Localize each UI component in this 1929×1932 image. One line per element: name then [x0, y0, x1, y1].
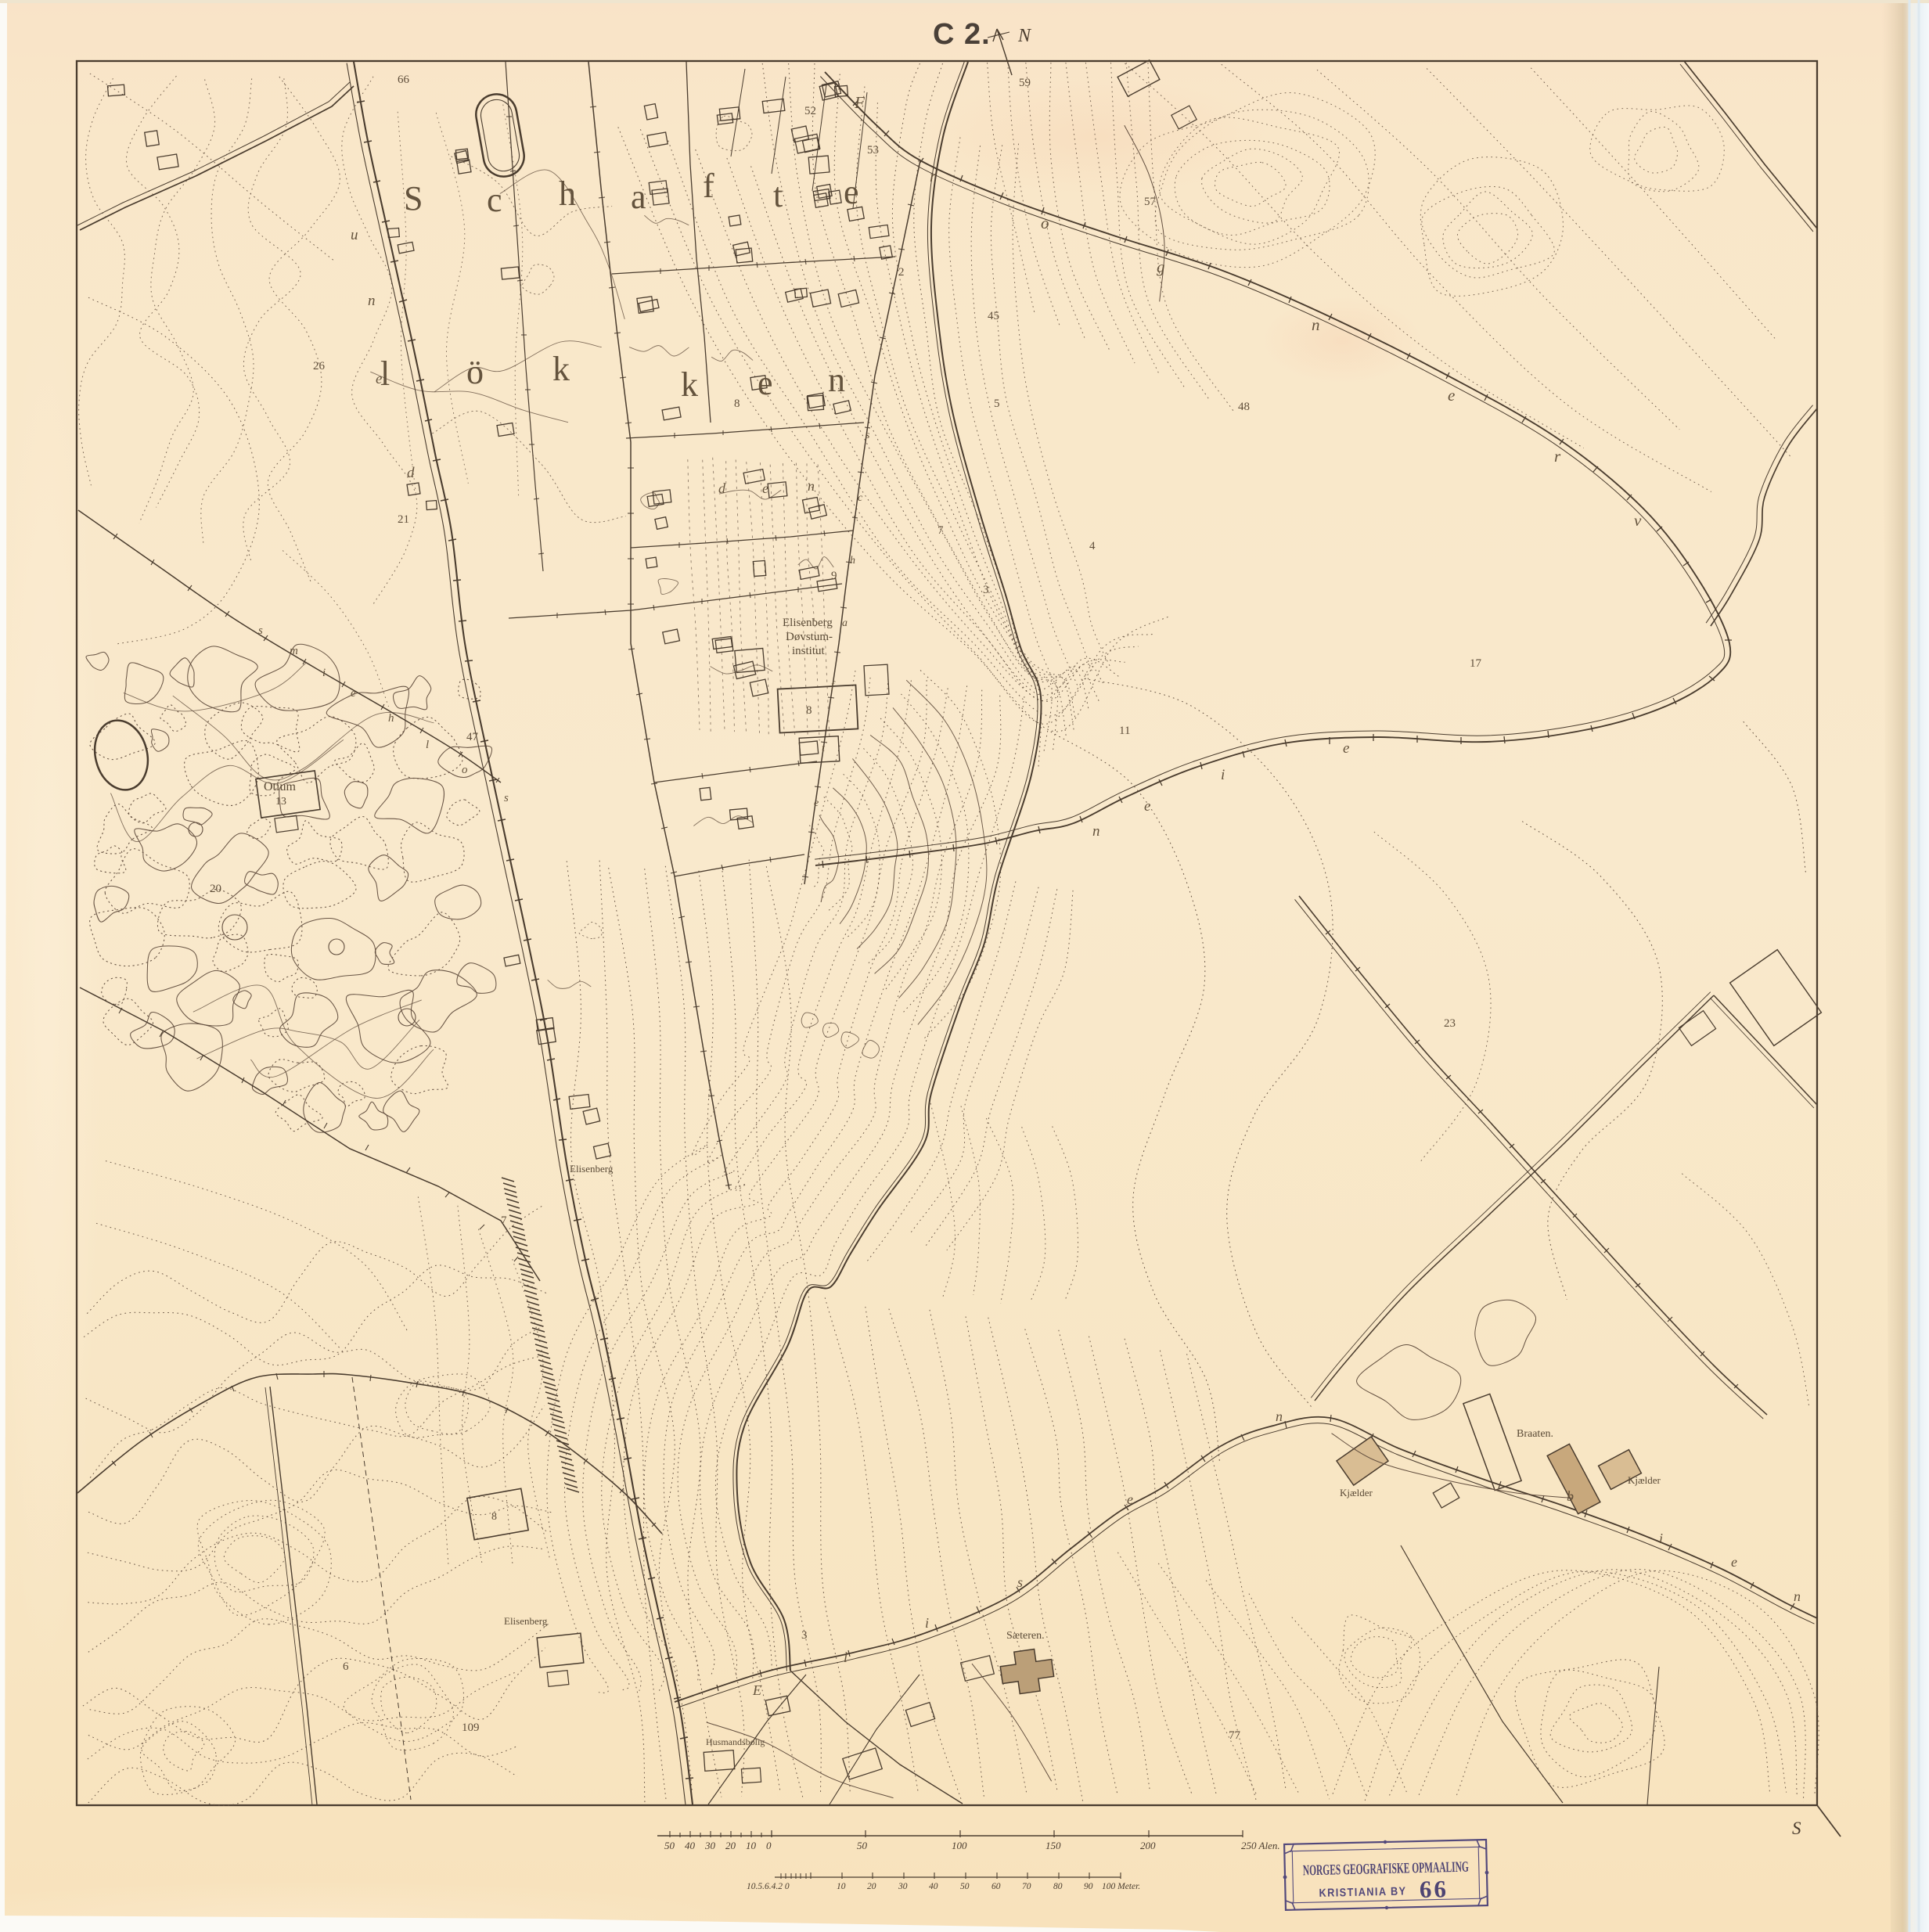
svg-text:Elisenberg: Elisenberg: [570, 1163, 614, 1175]
svg-text:e: e: [844, 173, 859, 211]
svg-text:i: i: [322, 667, 326, 679]
svg-text:10.5.6.4.2 0: 10.5.6.4.2 0: [747, 1882, 790, 1891]
svg-text:7: 7: [501, 1214, 507, 1227]
svg-text:r: r: [1554, 447, 1561, 466]
svg-text:n: n: [1794, 1588, 1801, 1604]
svg-text:23: 23: [1444, 1017, 1456, 1030]
svg-text:o: o: [462, 764, 468, 776]
svg-text:20: 20: [867, 1882, 876, 1891]
svg-text:t: t: [773, 176, 783, 214]
svg-text:i: i: [925, 1615, 929, 1631]
svg-text:institut: institut: [792, 645, 826, 657]
svg-text:e: e: [1144, 798, 1150, 815]
svg-text:13: 13: [275, 796, 286, 808]
svg-text:o: o: [1041, 214, 1049, 232]
svg-text:e: e: [1731, 1554, 1737, 1570]
svg-text:60: 60: [991, 1882, 1001, 1891]
svg-text:i: i: [1659, 1531, 1663, 1546]
svg-text:Husmandsbolig: Husmandsbolig: [706, 1736, 765, 1747]
svg-text:e: e: [351, 687, 356, 700]
svg-text:20: 20: [725, 1840, 736, 1851]
svg-text:47: 47: [466, 731, 479, 743]
svg-text:e: e: [1343, 740, 1349, 757]
svg-text:50: 50: [664, 1840, 675, 1851]
svg-text:Kjælder: Kjælder: [1340, 1487, 1373, 1498]
svg-text:9: 9: [831, 570, 837, 582]
svg-text:g: g: [1157, 257, 1165, 276]
svg-text:e: e: [376, 371, 382, 387]
svg-text:100 Meter.: 100 Meter.: [1102, 1882, 1140, 1891]
svg-text:F: F: [854, 93, 865, 112]
svg-text:s: s: [1017, 1574, 1023, 1590]
svg-text:c: c: [858, 492, 863, 504]
svg-text:77: 77: [1229, 1729, 1241, 1742]
svg-text:Kjælder: Kjælder: [1628, 1474, 1661, 1486]
svg-text:0: 0: [766, 1840, 772, 1851]
svg-text:40: 40: [929, 1882, 938, 1891]
svg-text:Elisenberg: Elisenberg: [783, 617, 833, 629]
svg-text:b: b: [1567, 1488, 1574, 1504]
svg-text:109: 109: [462, 1722, 480, 1734]
svg-text:17: 17: [1470, 657, 1482, 670]
svg-text:v: v: [1634, 511, 1642, 530]
svg-text:50: 50: [857, 1840, 868, 1851]
svg-text:80: 80: [1053, 1882, 1063, 1891]
svg-text:e: e: [758, 364, 773, 402]
svg-text:30: 30: [898, 1882, 908, 1891]
svg-text:4: 4: [1089, 540, 1096, 552]
svg-text:m: m: [290, 645, 298, 657]
svg-text:r: r: [930, 167, 937, 185]
svg-text:Otium: Otium: [264, 780, 296, 793]
svg-text:66: 66: [398, 74, 410, 86]
svg-text:40: 40: [685, 1840, 696, 1851]
svg-text:30: 30: [704, 1840, 716, 1851]
svg-text:n: n: [1276, 1409, 1283, 1424]
svg-text:e: e: [762, 480, 768, 496]
svg-text:E: E: [752, 1682, 761, 1698]
svg-text:Braaten.: Braaten.: [1517, 1428, 1553, 1440]
svg-text:150: 150: [1045, 1840, 1061, 1851]
svg-text:57: 57: [1144, 196, 1157, 208]
svg-text:KRISTIANIA BY: KRISTIANIA BY: [1319, 1885, 1406, 1900]
svg-text:k: k: [681, 365, 698, 404]
svg-text:45: 45: [988, 310, 999, 322]
svg-text:n: n: [368, 293, 376, 309]
svg-text:a: a: [631, 178, 646, 216]
svg-text:5: 5: [994, 398, 1000, 410]
svg-text:n: n: [1092, 823, 1100, 840]
svg-text:e: e: [1127, 1491, 1133, 1507]
svg-text:26: 26: [313, 360, 326, 372]
svg-text:8: 8: [491, 1511, 497, 1523]
svg-text:s: s: [504, 792, 509, 804]
svg-text:l: l: [426, 739, 429, 751]
svg-text:C 2.: C 2.: [933, 18, 991, 51]
svg-text:l: l: [844, 1650, 848, 1665]
svg-text:59: 59: [1019, 77, 1031, 89]
svg-text:S: S: [404, 179, 423, 218]
svg-text:53: 53: [867, 144, 879, 157]
svg-text:21: 21: [398, 513, 409, 526]
svg-text:d: d: [718, 480, 726, 496]
svg-text:s: s: [258, 624, 263, 637]
svg-text:Døvstum-: Døvstum-: [786, 631, 833, 643]
svg-text:n: n: [828, 361, 845, 399]
svg-text:k: k: [552, 350, 570, 388]
svg-text:s: s: [866, 430, 870, 441]
svg-text:3: 3: [983, 584, 989, 596]
svg-text:e: e: [1448, 386, 1455, 405]
svg-text:70: 70: [1022, 1882, 1031, 1891]
svg-text:d: d: [407, 465, 415, 481]
svg-text:3: 3: [801, 1629, 808, 1642]
svg-text:e: e: [814, 797, 819, 809]
svg-text:h: h: [850, 555, 855, 567]
svg-text:20: 20: [210, 883, 221, 895]
svg-text:a: a: [842, 617, 848, 629]
svg-text:50: 50: [960, 1882, 970, 1891]
svg-text:250 Alen.: 250 Alen.: [1241, 1840, 1280, 1851]
svg-text:u: u: [351, 227, 358, 243]
svg-text:8: 8: [806, 704, 812, 717]
svg-text:10: 10: [746, 1840, 757, 1851]
svg-text:66: 66: [1420, 1875, 1449, 1903]
svg-text:f: f: [703, 167, 714, 205]
svg-text:h: h: [559, 174, 576, 213]
svg-text:7: 7: [938, 524, 944, 537]
svg-text:200: 200: [1140, 1840, 1156, 1851]
svg-text:i: i: [1221, 767, 1225, 783]
svg-text:S: S: [1792, 1819, 1801, 1838]
svg-text:52: 52: [804, 105, 816, 117]
svg-text:2: 2: [898, 266, 905, 279]
svg-text:10: 10: [837, 1882, 846, 1891]
svg-text:6: 6: [343, 1660, 349, 1673]
svg-text:n: n: [808, 478, 815, 494]
svg-text:ö: ö: [466, 353, 484, 391]
svg-text:Elisenberg: Elisenberg: [504, 1615, 548, 1627]
svg-text:N: N: [1017, 26, 1032, 46]
svg-text:48: 48: [1238, 401, 1250, 413]
svg-text:8: 8: [734, 398, 740, 410]
svg-text:n: n: [1312, 315, 1320, 334]
svg-text:90: 90: [1084, 1882, 1093, 1891]
svg-text:h: h: [388, 712, 394, 725]
svg-text:Sæteren.: Sæteren.: [1006, 1630, 1045, 1642]
svg-text:11: 11: [1119, 725, 1130, 737]
svg-text:100: 100: [952, 1840, 967, 1851]
svg-text:c: c: [487, 181, 502, 219]
